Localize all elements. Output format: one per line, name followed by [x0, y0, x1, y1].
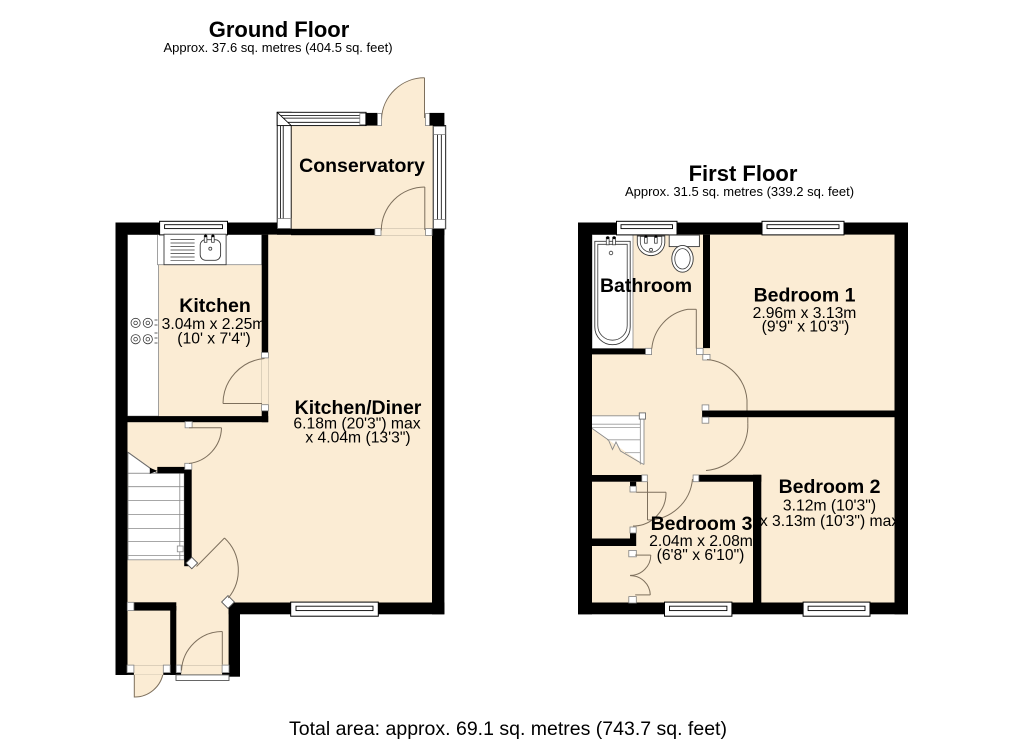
svg-text:Conservatory: Conservatory	[299, 155, 425, 177]
svg-text:Kitchen: Kitchen	[179, 295, 251, 317]
svg-text:Bedroom 2: Bedroom 2	[779, 476, 881, 498]
svg-text:Ground Floor: Ground Floor	[209, 17, 350, 42]
svg-text:Total area: approx. 69.1 sq. m: Total area: approx. 69.1 sq. metres (743…	[289, 718, 727, 740]
svg-text:(6'8" x 6'10"): (6'8" x 6'10")	[657, 547, 745, 564]
svg-text:(10' x 7'4"): (10' x 7'4")	[177, 331, 250, 348]
svg-text:(9'9" x 10'3"): (9'9" x 10'3")	[762, 319, 850, 336]
svg-text:Approx. 31.5 sq. metres (339.2: Approx. 31.5 sq. metres (339.2 sq. feet)	[625, 184, 854, 199]
svg-text:3.12m (10'3"): 3.12m (10'3")	[783, 498, 876, 515]
svg-text:First Floor: First Floor	[689, 161, 798, 186]
svg-text:x 4.04m (13'3"): x 4.04m (13'3")	[305, 430, 410, 447]
svg-text:Approx. 37.6 sq. metres (404.5: Approx. 37.6 sq. metres (404.5 sq. feet)	[163, 40, 392, 55]
svg-text:Bedroom 1: Bedroom 1	[754, 285, 856, 307]
svg-text:x 3.13m (10'3") max: x 3.13m (10'3") max	[760, 513, 899, 530]
svg-text:Bedroom 3: Bedroom 3	[651, 513, 753, 535]
svg-text:Bathroom: Bathroom	[600, 275, 692, 297]
